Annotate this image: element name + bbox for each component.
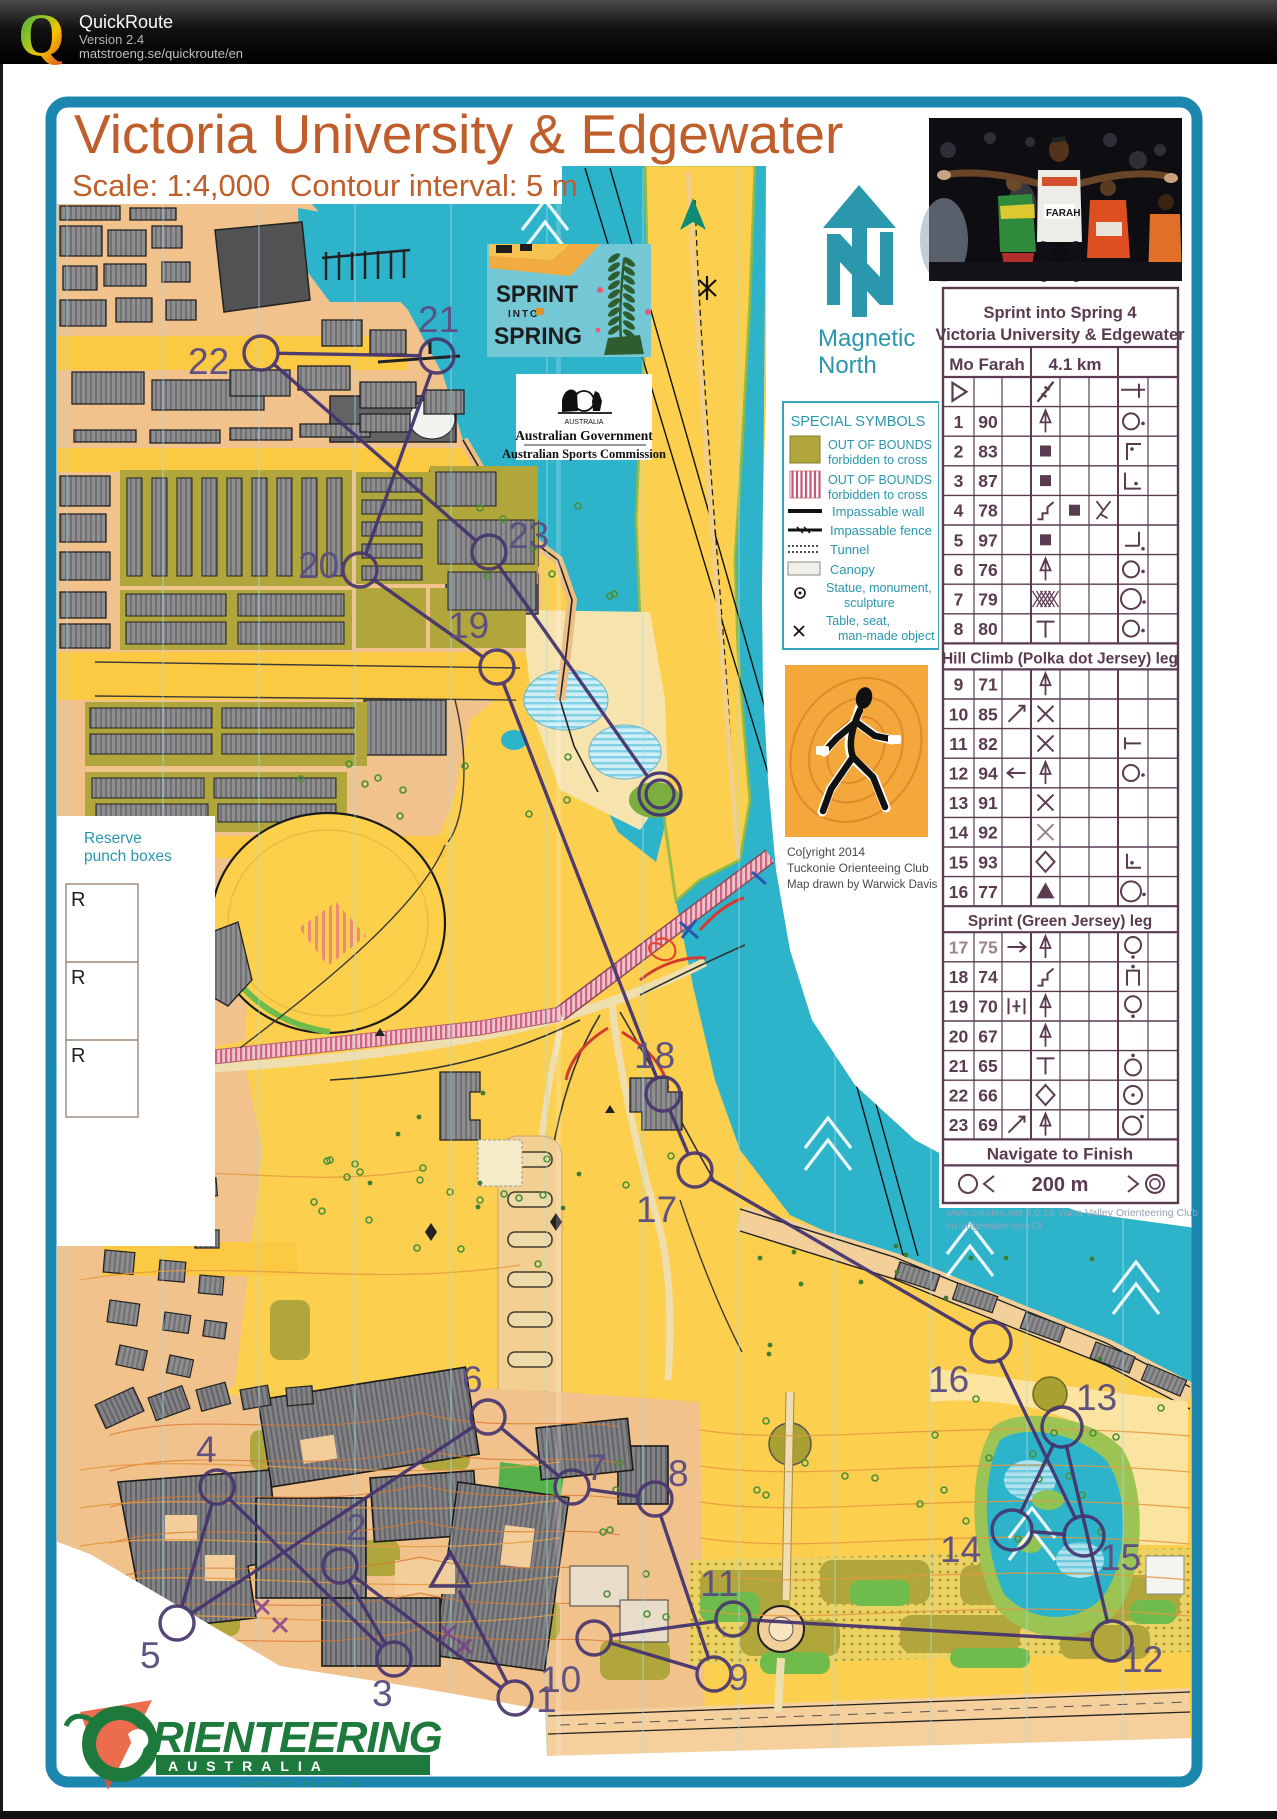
svg-text:66: 66 bbox=[978, 1086, 998, 1106]
svg-text:83: 83 bbox=[978, 442, 998, 462]
svg-text:4: 4 bbox=[954, 501, 964, 521]
svg-text:19: 19 bbox=[949, 997, 969, 1017]
svg-text:Victoria University & Edgewate: Victoria University & Edgewater bbox=[935, 326, 1185, 344]
svg-text:14: 14 bbox=[949, 823, 969, 843]
svg-text:4.1 km: 4.1 km bbox=[1049, 355, 1102, 374]
svg-text:R: R bbox=[71, 889, 85, 911]
svg-text:Version 2.4: Version 2.4 bbox=[79, 32, 144, 47]
svg-text:sculpture: sculpture bbox=[844, 596, 895, 610]
svg-text:punch boxes: punch boxes bbox=[84, 848, 172, 865]
svg-text:5: 5 bbox=[954, 530, 964, 550]
svg-text:1: 1 bbox=[954, 412, 964, 432]
svg-text:16: 16 bbox=[949, 882, 969, 902]
svg-text:18: 18 bbox=[949, 967, 969, 987]
svg-text:North: North bbox=[818, 352, 877, 379]
svg-text:AUSTRALIA: AUSTRALIA bbox=[168, 1758, 330, 1774]
svg-text:78: 78 bbox=[978, 501, 998, 521]
svg-text:5: 5 bbox=[140, 1635, 161, 1676]
svg-text:7: 7 bbox=[954, 590, 964, 610]
svg-text:forbidden to cross: forbidden to cross bbox=[828, 488, 927, 502]
svg-text:65: 65 bbox=[978, 1056, 998, 1076]
svg-text:79: 79 bbox=[978, 590, 998, 610]
svg-text:9: 9 bbox=[954, 675, 964, 695]
svg-text:17: 17 bbox=[949, 938, 968, 958]
svg-text:R: R bbox=[71, 967, 85, 989]
svg-text:22: 22 bbox=[188, 341, 229, 382]
svg-text:20: 20 bbox=[949, 1026, 969, 1046]
svg-text:12: 12 bbox=[1122, 1639, 1163, 1680]
svg-text:75: 75 bbox=[978, 938, 998, 958]
svg-text:93: 93 bbox=[978, 852, 998, 872]
svg-text:Canopy: Canopy bbox=[830, 562, 875, 577]
svg-text:15: 15 bbox=[1100, 1537, 1141, 1578]
svg-text:90: 90 bbox=[978, 412, 998, 432]
svg-text:17: 17 bbox=[636, 1189, 677, 1230]
svg-text:SPRING: SPRING bbox=[494, 323, 582, 350]
svg-text:2: 2 bbox=[954, 442, 964, 462]
svg-text:97: 97 bbox=[978, 530, 997, 550]
svg-text:20: 20 bbox=[298, 545, 339, 586]
svg-text:23: 23 bbox=[949, 1115, 969, 1135]
svg-text:Sprint into Spring 4: Sprint into Spring 4 bbox=[983, 304, 1137, 322]
svg-text:22: 22 bbox=[949, 1086, 969, 1106]
svg-text:70: 70 bbox=[978, 997, 998, 1017]
svg-text:Map drawn by Warwick Davis: Map drawn by Warwick Davis bbox=[787, 879, 938, 891]
svg-text:18: 18 bbox=[634, 1035, 675, 1076]
svg-text:8: 8 bbox=[954, 619, 964, 639]
svg-text:Table, seat,: Table, seat, bbox=[826, 614, 890, 628]
svg-text:69: 69 bbox=[978, 1115, 998, 1135]
svg-text:76: 76 bbox=[978, 560, 998, 580]
svg-text:10: 10 bbox=[540, 1659, 581, 1700]
svg-text:3: 3 bbox=[954, 471, 964, 491]
svg-text:AUSTRALIA: AUSTRALIA bbox=[565, 419, 604, 426]
svg-text:12: 12 bbox=[949, 764, 969, 784]
svg-text:INTO: INTO bbox=[508, 309, 540, 320]
svg-text:7: 7 bbox=[586, 1447, 607, 1488]
svg-text:11: 11 bbox=[700, 1563, 738, 1604]
svg-text:9: 9 bbox=[728, 1657, 749, 1698]
svg-text:Australian Sports Commission: Australian Sports Commission bbox=[502, 447, 666, 461]
svg-text:Tuckonie Orienteeing Club: Tuckonie Orienteeing Club bbox=[787, 861, 929, 875]
svg-text:Magnetic: Magnetic bbox=[818, 325, 915, 352]
svg-text:matstroeng.se/quickroute/en: matstroeng.se/quickroute/en bbox=[79, 46, 243, 61]
svg-text:Co[yright 2014: Co[yright 2014 bbox=[787, 845, 865, 859]
svg-text:14: 14 bbox=[940, 1529, 981, 1570]
svg-text:OUT OF BOUNDS: OUT OF BOUNDS bbox=[828, 438, 932, 452]
svg-text:200 m: 200 m bbox=[1032, 1174, 1089, 1196]
svg-text:R: R bbox=[71, 1045, 85, 1067]
svg-text:Australian Government: Australian Government bbox=[515, 428, 653, 443]
svg-text:8: 8 bbox=[668, 1453, 689, 1494]
svg-text:71: 71 bbox=[978, 675, 998, 695]
svg-text:77: 77 bbox=[978, 882, 997, 902]
svg-text:15: 15 bbox=[949, 852, 969, 872]
svg-text:19: 19 bbox=[448, 605, 489, 646]
svg-text:RIENTEERING: RIENTEERING bbox=[152, 1713, 442, 1762]
svg-text:3: 3 bbox=[372, 1673, 393, 1714]
svg-text:80: 80 bbox=[978, 619, 998, 639]
svg-text:82: 82 bbox=[978, 734, 998, 754]
svg-text:13: 13 bbox=[1076, 1377, 1117, 1418]
svg-text:Impassable wall: Impassable wall bbox=[832, 504, 925, 519]
svg-text:Statue, monument,: Statue, monument, bbox=[826, 581, 932, 595]
svg-text:QuickRoute: QuickRoute bbox=[79, 12, 173, 32]
svg-text:Impassable fence: Impassable fence bbox=[830, 523, 932, 538]
svg-text:74: 74 bbox=[978, 967, 998, 987]
svg-text:Hill Climb (Polka dot Jersey): Hill Climb (Polka dot Jersey) leg bbox=[942, 650, 1178, 667]
svg-text:91: 91 bbox=[978, 793, 998, 813]
svg-text:Victoria University & Edgewate: Victoria University & Edgewater bbox=[74, 103, 843, 165]
svg-text:SPRINT: SPRINT bbox=[496, 281, 578, 308]
svg-text:forbidden to cross: forbidden to cross bbox=[828, 453, 927, 467]
svg-text:23: 23 bbox=[508, 515, 549, 556]
svg-text:13: 13 bbox=[949, 793, 969, 813]
svg-text:94: 94 bbox=[978, 764, 998, 784]
svg-text:OUT OF BOUNDS: OUT OF BOUNDS bbox=[828, 473, 932, 487]
svg-text:man-made object: man-made object bbox=[838, 629, 935, 643]
svg-text:11: 11 bbox=[949, 734, 968, 754]
svg-text:Navigate to Finish: Navigate to Finish bbox=[987, 1144, 1133, 1163]
svg-text:21: 21 bbox=[418, 299, 459, 340]
svg-text:87: 87 bbox=[978, 471, 997, 491]
svg-text:Tunnel: Tunnel bbox=[830, 542, 869, 557]
svg-text:85: 85 bbox=[978, 704, 998, 724]
svg-text:6: 6 bbox=[462, 1359, 483, 1400]
svg-text:67: 67 bbox=[978, 1026, 997, 1046]
svg-text:FARAH: FARAH bbox=[1046, 208, 1080, 219]
svg-text:Contour interval: 5 m: Contour interval: 5 m bbox=[290, 168, 578, 203]
svg-text:16: 16 bbox=[928, 1359, 969, 1400]
svg-text:Q: Q bbox=[18, 2, 65, 68]
svg-text:Reserve: Reserve bbox=[84, 830, 142, 847]
svg-text:Scale: 1:4,000: Scale: 1:4,000 bbox=[72, 168, 270, 203]
svg-text:vu-edgewater-nov13: vu-edgewater-nov13 bbox=[946, 1220, 1042, 1232]
svg-text:10: 10 bbox=[949, 704, 969, 724]
svg-text:21: 21 bbox=[949, 1056, 969, 1076]
svg-text:2: 2 bbox=[346, 1507, 367, 1548]
svg-text:orienteering.asn.au: orienteering.asn.au bbox=[240, 1779, 366, 1788]
svg-text:SPECIAL SYMBOLS: SPECIAL SYMBOLS bbox=[791, 414, 926, 430]
svg-text:Sprint (Green Jersey) leg: Sprint (Green Jersey) leg bbox=[968, 913, 1152, 930]
svg-text:Mo Farah: Mo Farah bbox=[949, 355, 1025, 374]
svg-text:4: 4 bbox=[196, 1429, 217, 1470]
svg-text:www.condes.net 9.0.16 Yarra Va: www.condes.net 9.0.16 Yarra Valley Orien… bbox=[945, 1207, 1198, 1219]
svg-text:6: 6 bbox=[954, 560, 964, 580]
svg-text:92: 92 bbox=[978, 823, 998, 843]
